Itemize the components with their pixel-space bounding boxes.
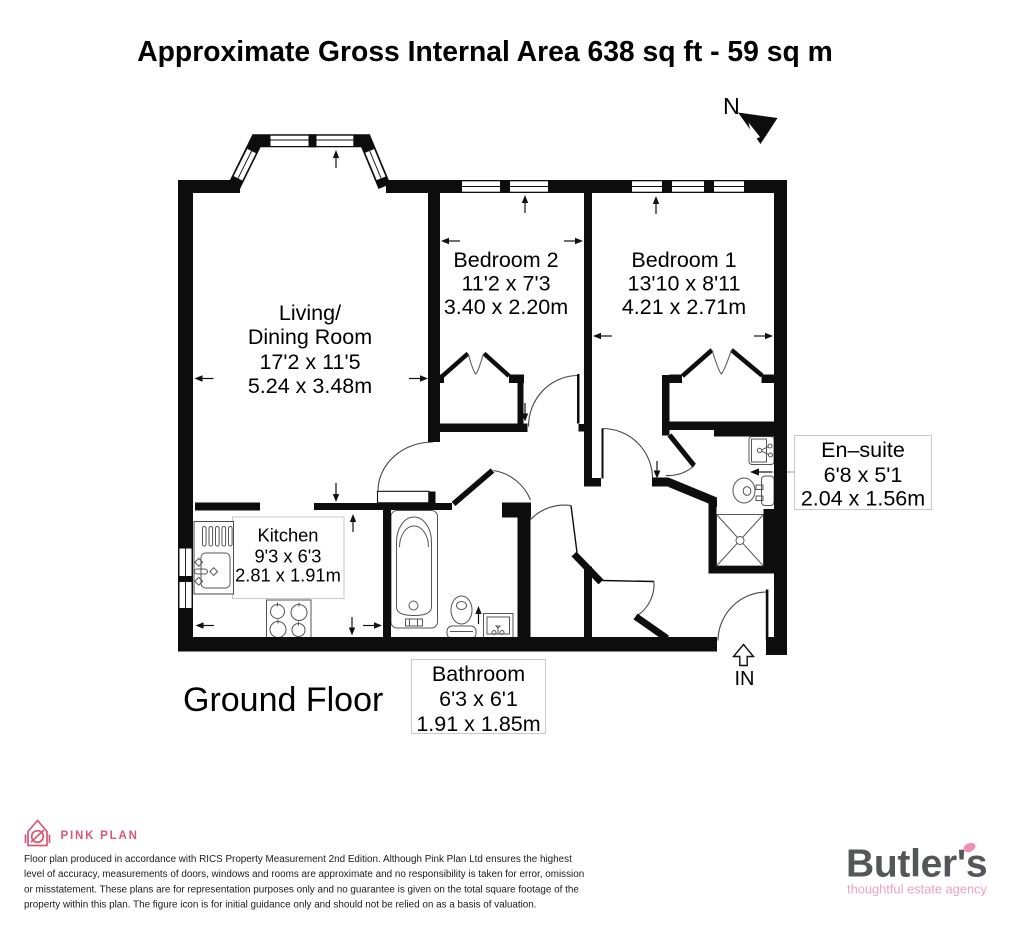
svg-text:IN: IN	[735, 668, 755, 690]
svg-text:Floor plan produced in accorda: Floor plan produced in accordance with R…	[24, 854, 572, 865]
svg-text:thoughtful estate agency: thoughtful estate agency	[847, 882, 988, 897]
svg-text:5.24 x 3.48m: 5.24 x 3.48m	[248, 374, 372, 398]
svg-text:11'2 x 7'3: 11'2 x 7'3	[461, 272, 550, 296]
svg-text:Living/: Living/	[279, 301, 341, 325]
svg-text:17'2 x 11'5: 17'2 x 11'5	[259, 350, 360, 374]
svg-text:6'3 x 6'1: 6'3 x 6'1	[439, 687, 518, 711]
svg-text:6'8 x 5'1: 6'8 x 5'1	[824, 463, 903, 487]
svg-text:4.21 x 2.71m: 4.21 x 2.71m	[622, 295, 746, 319]
svg-text:property within this plan. The: property within this plan. The figure ic…	[24, 900, 537, 911]
svg-text:En–suite: En–suite	[821, 438, 905, 462]
svg-text:3.40 x 2.20m: 3.40 x 2.20m	[444, 295, 568, 319]
svg-text:PINK PLAN: PINK PLAN	[61, 830, 139, 842]
svg-text:Kitchen: Kitchen	[258, 525, 319, 546]
svg-text:level of accuracy, measurement: level of accuracy, measurements of doors…	[24, 869, 584, 880]
svg-text:Dining Room: Dining Room	[248, 325, 372, 349]
svg-text:Bathroom: Bathroom	[432, 662, 525, 686]
svg-text:or misstatement. These plans a: or misstatement. These plans are for rep…	[24, 885, 579, 896]
svg-text:13'10 x 8'11: 13'10 x 8'11	[627, 272, 740, 296]
svg-text:1.91 x 1.85m: 1.91 x 1.85m	[416, 712, 540, 736]
svg-text:2.04 x 1.56m: 2.04 x 1.56m	[801, 487, 925, 511]
svg-text:Approximate Gross Internal Are: Approximate Gross Internal Area 638 sq f…	[137, 35, 833, 67]
svg-text:Bedroom 1: Bedroom 1	[631, 248, 736, 272]
svg-text:Ground Floor: Ground Floor	[183, 681, 383, 719]
svg-text:9'3 x 6'3: 9'3 x 6'3	[255, 546, 322, 567]
svg-text:Bedroom 2: Bedroom 2	[453, 248, 558, 272]
svg-text:2.81 x 1.91m: 2.81 x 1.91m	[235, 565, 341, 586]
svg-text:N: N	[723, 93, 740, 119]
